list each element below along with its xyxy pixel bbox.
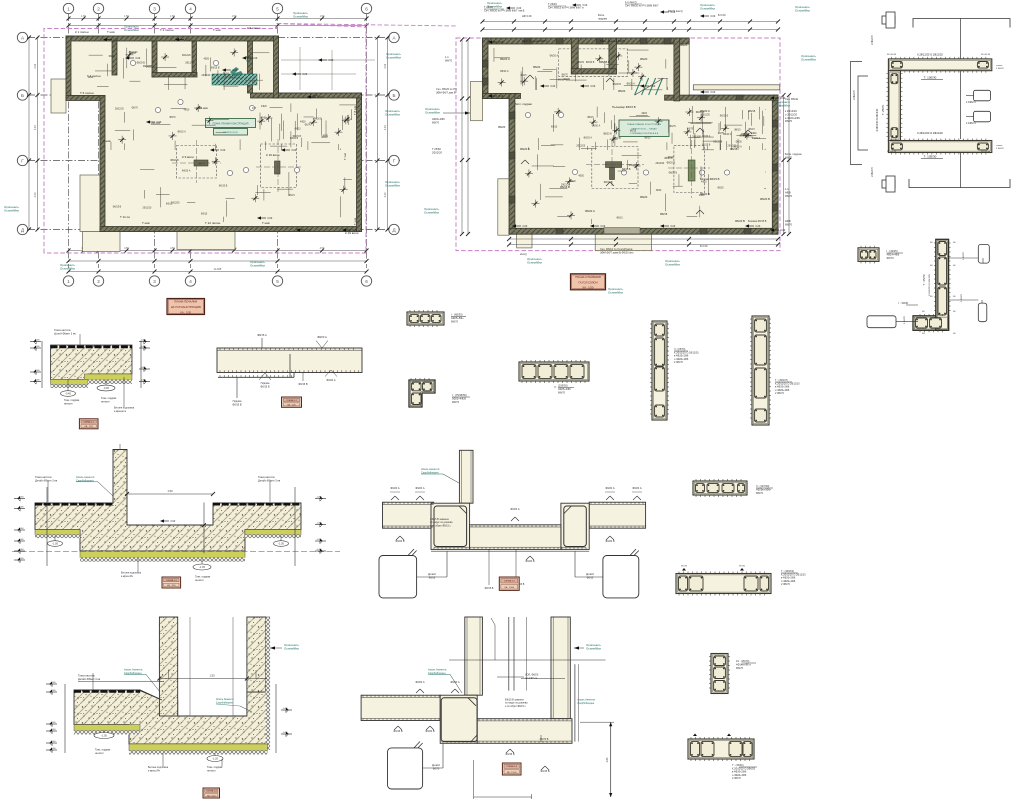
svg-text:Ф6/15: Ф6/15	[551, 126, 558, 129]
svg-text:-0.00: -0.00	[51, 690, 57, 692]
svg-text:4Ф20: 4Ф20	[190, 74, 196, 77]
svg-text:0.00: 0.00	[671, 11, 676, 14]
svg-text:Ботм. подрам Ф6/70: Ботм. подрам Ф6/70	[600, 39, 626, 43]
svg-text:Ф6/15 В: Ф6/15 В	[720, 114, 729, 117]
svg-text:Ф8/20 В: Ф8/20 В	[603, 132, 612, 135]
svg-text:Ф6/15: Ф6/15	[558, 79, 565, 82]
svg-text:-0.00: -0.00	[19, 506, 25, 508]
svg-text:1.50: 1.50	[124, 15, 129, 18]
svg-text:2Ф12/20: 2Ф12/20	[185, 61, 194, 64]
svg-text:ЗФМ Ф6/7 днва В Ф6/20 кнл: ЗФМ Ф6/7 днва В Ф6/20 кнл	[600, 250, 634, 254]
svg-text:Оснимбйки: Оснимбйки	[293, 14, 308, 18]
svg-text:Ф6/20 А: Ф6/20 А	[723, 133, 732, 136]
svg-text:3.20: 3.20	[34, 63, 37, 68]
svg-text:Ф6/20: Ф6/20	[498, 125, 506, 129]
svg-text:Т: 105/30: Т: 105/30	[924, 155, 937, 159]
svg-text:-0.00: -0.00	[19, 549, 25, 551]
svg-text:Сеч. Ф6/20 по РЧ: Сеч. Ф6/20 по РЧ	[436, 87, 457, 91]
svg-text:нн-вснт: нн-вснт	[195, 579, 205, 582]
svg-text:Т 8 зив: Т 8 зив	[353, 105, 357, 115]
svg-text:-0.00: -0.00	[51, 682, 57, 684]
svg-text:Ф6/20 А: Ф6/20 А	[585, 209, 595, 213]
svg-text:Ф6/70: Ф6/70	[564, 78, 571, 81]
svg-text:Ф6/15 В: Ф6/15 В	[485, 587, 494, 590]
svg-text:4Ф20+2Ф6: 4Ф20+2Ф6	[432, 117, 445, 121]
svg-text:2 4Ф6/70: 2 4Ф6/70	[966, 101, 976, 104]
svg-text:ГА ГОЛ СЛЛОН: ГА ГОЛ СЛЛОН	[578, 280, 597, 284]
svg-text:Скорблйперен: Скорблйперен	[577, 702, 594, 705]
svg-text:II :: II :	[554, 385, 557, 389]
svg-text:ОТКЛЕМЕН Р ВОЛЛИ А Б В: ОТКЛЕМЕН Р ВОЛЛИ А Б В	[630, 132, 659, 135]
svg-text:2 Ф6/70: 2 Ф6/70	[674, 361, 683, 364]
svg-text:Оснимбйки: Оснимбйки	[385, 183, 400, 187]
svg-text:-0.00: -0.00	[283, 708, 289, 710]
svg-text:ПЛАНА ПЛАНИН КОНСТРУКЦИЯ: ПЛАНА ПЛАНИН КОНСТРУКЦИЯ	[213, 123, 249, 126]
svg-text:Ф6/20: Ф6/20	[644, 137, 651, 140]
svg-text:Т нив: Т нив	[213, 28, 221, 32]
svg-text:4Ф20: 4Ф20	[656, 189, 662, 192]
svg-text:Апаль Анненти: Апаль Анненти	[124, 668, 143, 672]
svg-text:Ф6/15: Ф6/15	[520, 74, 527, 77]
svg-text:Ф6/70: Ф6/70	[785, 119, 793, 123]
svg-text:-0.00: -0.00	[35, 339, 41, 341]
svg-text:-1.05: -1.05	[52, 543, 58, 546]
svg-text:Ф6/20 А: Ф6/20 А	[415, 487, 424, 490]
svg-text:0.00: 0.00	[233, 69, 238, 72]
svg-text:-1.05: -1.05	[278, 543, 284, 546]
svg-text:Ф6/20: Ф6/20	[680, 43, 688, 47]
svg-text:СХЕМА 4-4: СХЕМА 4-4	[506, 765, 518, 768]
svg-text:-0.00: -0.00	[19, 528, 25, 530]
svg-text:2 Ф6/70: 2 Ф6/70	[732, 777, 741, 780]
svg-text:Ф6/15 В: Ф6/15 В	[622, 168, 631, 171]
svg-text:-0.00: -0.00	[317, 549, 323, 551]
svg-text:Оснимбйки: Оснимбйки	[608, 290, 623, 294]
svg-text:Оснимбйки: Оснимбйки	[250, 263, 265, 267]
svg-text:н по обрат Ф6/15 с: н по обрат Ф6/15 с	[505, 705, 526, 708]
svg-text:2 Ф6/70: 2 Ф6/70	[996, 147, 1005, 150]
svg-text:0.00: 0.00	[136, 57, 141, 60]
svg-text:Пълномер Ф6/15 В: Пълномер Ф6/15 В	[612, 105, 636, 109]
svg-text:Оснимбйки: Оснимбйки	[124, 28, 139, 32]
svg-text:1: 1	[67, 279, 70, 284]
svg-text:Т нив: Т нив	[353, 217, 357, 225]
svg-text:3.20: 3.20	[384, 125, 387, 130]
svg-text:Ф6/20: Ф6/20	[578, 61, 585, 64]
svg-text:Ф6/20 В: Ф6/20 В	[395, 540, 404, 543]
svg-text:2 4Ф6/70: 2 4Ф6/70	[966, 122, 976, 125]
svg-text:Ф6/70: Ф6/70	[687, 127, 694, 130]
svg-text:Ф6/15 В: Ф6/15 В	[232, 403, 241, 406]
svg-text:6: 6	[365, 279, 368, 284]
svg-text:К 16 вили: К 16 вили	[266, 153, 280, 157]
svg-text:-0.00: -0.00	[51, 748, 57, 750]
svg-text:Ф6/20 А: Ф6/20 А	[390, 487, 399, 490]
svg-text:подрам: подрам	[598, 17, 607, 20]
svg-text:Ф6/20 А: Ф6/20 А	[592, 124, 601, 127]
svg-text:НА ГОЛ КАНСТРУКЦИЯ: НА ГОЛ КАНСТРУКЦИЯ	[171, 305, 201, 309]
svg-text:I : (75/45/50): I : (75/45/50)	[452, 393, 467, 397]
svg-text:Т нив: Т нив	[262, 221, 270, 225]
svg-text:5: 5	[276, 6, 279, 11]
svg-text:Т 25/60: Т 25/60	[432, 147, 441, 151]
svg-text:2-Ф12/70: 2-Ф12/70	[853, 90, 856, 100]
svg-text:союзн.: союзн.	[996, 145, 1003, 147]
svg-text:0.00: 0.00	[253, 57, 258, 60]
svg-text:Оснимбйки: Оснимбйки	[801, 57, 816, 61]
svg-text:Ф6 Ф6 Ф6: Ф6 Ф6 Ф6	[887, 150, 897, 153]
svg-text:2Ф12/20: 2Ф12/20	[432, 150, 442, 154]
svg-text:0.00: 0.00	[591, 85, 596, 88]
svg-text:Оснимбйки: Оснимбйки	[424, 210, 439, 214]
svg-text:Б 0.00: Б 0.00	[700, 244, 708, 248]
svg-text:Ф8/20 В: Ф8/20 В	[586, 61, 595, 64]
svg-text:Т нив: Т нив	[107, 30, 115, 34]
svg-text:2 Ф6/70: 2 Ф6/70	[775, 392, 784, 395]
svg-text:I : (40/25): I : (40/25)	[887, 249, 898, 253]
svg-text:4.50: 4.50	[124, 247, 129, 250]
svg-text:ЗФМ Ф6/7 днв В: ЗФМ Ф6/7 днв В	[436, 90, 456, 94]
svg-text:6: 6	[365, 6, 368, 11]
svg-text:I : 30/30: I : 30/30	[898, 301, 908, 305]
svg-text:4Ф20: 4Ф20	[88, 76, 94, 79]
svg-text:Ф6/15 В: Ф6/15 В	[702, 144, 711, 147]
svg-text:Ф6/70: Ф6/70	[887, 256, 895, 260]
svg-text:4Ф20: 4Ф20	[578, 175, 584, 178]
svg-text:Оснимбйки: Оснимбйки	[284, 646, 299, 650]
svg-text:0.00: 0.00	[307, 229, 312, 232]
svg-text:Ф6/70: Ф6/70	[736, 666, 744, 670]
svg-text:Ф6/20: Ф6/20	[717, 186, 724, 189]
svg-text:Ф8/20 В: Ф8/20 В	[613, 83, 622, 86]
svg-text:Ф6/20 А: Ф6/20 А	[584, 137, 593, 140]
svg-text:СХЕМА 4-4: СХЕМА 4-4	[206, 790, 218, 793]
svg-text:Т: 100/30: Т: 100/30	[924, 76, 937, 80]
svg-text:0.00: 0.00	[499, 95, 504, 98]
svg-text:Боковка Ф6/15 В: Боковка Ф6/15 В	[748, 220, 767, 223]
svg-text:НФВ: НФВ	[785, 219, 791, 223]
svg-text:Оснимбйки: Оснимбйки	[425, 110, 440, 114]
svg-text:Ф6/20 А: Ф6/20 А	[550, 54, 559, 57]
svg-text:Ф6/15 В: Ф6/15 В	[393, 730, 402, 733]
svg-text:0.00: 0.00	[329, 59, 334, 62]
svg-text:Ф6/20: Ф6/20	[668, 156, 675, 159]
svg-text:СХЕМА 2-2: СХЕМА 2-2	[286, 399, 298, 402]
svg-text:Т: 25/70: Т: 25/70	[881, 104, 885, 115]
svg-text:3.20: 3.20	[34, 125, 37, 130]
svg-text:0.00: 0.00	[671, 225, 676, 228]
svg-text:Ф6/15: Ф6/15	[109, 55, 116, 58]
svg-text:1-1: 1-1	[785, 187, 789, 191]
svg-text:Б: Б	[21, 93, 24, 98]
svg-text:Ф6/70: Ф6/70	[433, 767, 440, 770]
svg-text:4.50: 4.50	[170, 247, 175, 250]
svg-text:1.50: 1.50	[167, 489, 173, 493]
svg-text:нн-вснт: нн-вснт	[101, 400, 111, 403]
svg-text:Ф6/20: Ф6/20	[569, 180, 576, 183]
svg-text:Ф6/20 А: Ф6/20 А	[500, 70, 509, 73]
svg-text:Ф6/15: Ф6/15	[616, 217, 623, 220]
svg-text:к-мрешетк: к-мрешетк	[114, 410, 127, 413]
svg-text:Ф6/20 А: Ф6/20 А	[752, 137, 761, 140]
svg-text:4Ф20: 4Ф20	[261, 105, 267, 108]
svg-text:Ф6/15: Ф6/15	[294, 127, 301, 130]
svg-text:нн-вснт: нн-вснт	[207, 769, 217, 772]
svg-text:2Ф12/20: 2Ф12/20	[701, 114, 710, 117]
svg-text:Ф6/20: Ф6/20	[321, 136, 328, 139]
svg-text:2Ф12/20: 2Ф12/20	[142, 207, 151, 210]
svg-text:-0.00: -0.00	[19, 558, 25, 560]
svg-text:Апаль Анненти: Апаль Анненти	[428, 668, 447, 672]
svg-text:в 4Ф20+2Ф6: в 4Ф20+2Ф6	[785, 116, 800, 120]
svg-text:3.20: 3.20	[384, 63, 387, 68]
svg-text:К1 : (25/70): К1 : (25/70)	[736, 659, 749, 663]
svg-text:Ф6/15 В: Ф6/15 В	[560, 185, 570, 189]
svg-text:2: 2	[97, 279, 100, 284]
svg-text:Ф6 Ф6: Ф6 Ф6	[739, 565, 746, 568]
svg-text:0.00: 0.00	[353, 229, 358, 232]
svg-text:Ф6/15: Ф6/15	[748, 128, 755, 131]
svg-text:0.00: 0.00	[517, 7, 522, 10]
svg-text:К.2Ф12/20 О.2Ф12/20: К.2Ф12/20 О.2Ф12/20	[928, 273, 931, 295]
svg-text:Ф6/70: Ф6/70	[305, 124, 312, 127]
svg-text:-1.35: -1.35	[199, 566, 205, 569]
svg-text:Оснимбйки: Оснимбйки	[700, 6, 715, 10]
svg-text:Скорблйперен: Скорблйперен	[216, 701, 233, 704]
svg-text:КА : 1/100: КА : 1/100	[504, 586, 514, 589]
svg-text:Ф6/15: Ф6/15	[630, 129, 637, 132]
svg-text:нн-вснт: нн-вснт	[95, 752, 105, 755]
svg-text:-0.00: -0.00	[51, 729, 57, 731]
svg-text:Ф6/20: Ф6/20	[736, 140, 743, 143]
svg-text:Ф6/70: Ф6/70	[558, 390, 566, 394]
svg-text:4: 4	[189, 279, 192, 284]
svg-text:2Ф12/20: 2Ф12/20	[741, 133, 750, 136]
svg-text:Ф6/70: Ф6/70	[785, 155, 793, 159]
svg-text:Ф6/15: Ф6/15	[288, 194, 295, 197]
svg-text:Ф6/70: Ф6/70	[756, 491, 764, 495]
svg-text:I : (N5/30): I : (N5/30)	[451, 313, 463, 317]
svg-text:НФВ: НФВ	[785, 190, 791, 194]
svg-text:1.50: 1.50	[320, 15, 325, 18]
svg-text:4Ф20: 4Ф20	[641, 112, 647, 115]
svg-text:2Ф12/20: 2Ф12/20	[713, 140, 722, 143]
svg-text:Ф6/15: Ф6/15	[223, 72, 230, 75]
svg-text:Ф6 Ф6 Ф6: Ф6 Ф6 Ф6	[981, 53, 991, 56]
svg-text:КА : 1/50: КА : 1/50	[180, 310, 191, 314]
svg-text:2Ф12/20: 2Ф12/20	[202, 74, 211, 77]
svg-text:Ф6/20 В: Ф6/20 В	[425, 730, 434, 733]
svg-text:К 7: К 7	[252, 106, 257, 110]
svg-text:Оснимбйки: Оснимбйки	[386, 55, 401, 59]
svg-text:Ф6/15: Ф6/15	[748, 109, 756, 113]
svg-text:Ф6/20 А: Ф6/20 А	[500, 57, 510, 61]
svg-text:Т пил: Т пил	[343, 152, 347, 160]
svg-text:1.50: 1.50	[81, 15, 86, 18]
svg-text:Ф6/70: Ф6/70	[718, 132, 725, 135]
svg-text:к-мреш.Ре: к-мреш.Ре	[121, 575, 134, 578]
svg-text:1 Ф6/70: 1 Ф6/70	[903, 315, 906, 324]
svg-text:0.00: 0.00	[221, 149, 226, 152]
svg-text:Ф6/20 А: Ф6/20 А	[626, 83, 635, 86]
svg-text:Детайл Ф6мнт 3 нв: Детайл Ф6мнт 3 нв	[78, 678, 101, 681]
svg-text:К.2Ф12/20 О.2Ф12/20: К.2Ф12/20 О.2Ф12/20	[917, 131, 943, 135]
svg-text:Ф6/20 А: Ф6/20 А	[510, 508, 519, 511]
svg-text:к 2Ф12/20: к 2Ф12/20	[785, 109, 797, 113]
svg-text:Ботм.: Ботм.	[598, 13, 605, 17]
svg-text:Ф6/15: Ф6/15	[587, 576, 594, 579]
svg-text:Ф6/70: Ф6/70	[132, 107, 139, 110]
svg-text:0.00: 0.00	[523, 225, 528, 228]
svg-text:Ботл. подрам Ф6/70: Ботл. подрам Ф6/70	[522, 39, 547, 43]
svg-text:К.2Ф12/20 О.2Ф12/20: К.2Ф12/20 О.2Ф12/20	[917, 53, 943, 57]
svg-text:Ф6/20 В: Ф6/20 В	[605, 540, 614, 543]
svg-text:Б 0.00: Б 0.00	[718, 13, 726, 17]
svg-text:Ф6/70: Ф6/70	[169, 116, 176, 119]
svg-text:3: 3	[153, 6, 156, 11]
svg-text:Ф8/20 В: Ф8/20 В	[170, 159, 179, 162]
svg-text:-0.00: -0.00	[141, 367, 147, 369]
svg-text:4Ф20: 4Ф20	[300, 121, 306, 124]
svg-text:-0.00: -0.00	[141, 346, 147, 348]
svg-text:0.00: 0.00	[551, 85, 556, 88]
svg-text:0.00: 0.00	[171, 520, 176, 523]
svg-text:1 Ф6/70: 1 Ф6/70	[960, 293, 963, 302]
svg-text:Б: Б	[392, 93, 395, 98]
svg-text:Ф6/70: Ф6/70	[785, 222, 793, 226]
svg-text:Ф8/20 В: Ф8/20 В	[669, 171, 678, 174]
svg-text:2ног(): 2ног()	[520, 252, 527, 256]
svg-text:Ф6/20 А: Ф6/20 А	[702, 135, 711, 138]
svg-text:Ф8/20 В: Ф8/20 В	[136, 62, 145, 65]
svg-text:Ф6/20 А: Ф6/20 А	[415, 681, 424, 684]
svg-text:н по обрат Ф6/15 с: н по обрат Ф6/15 с	[430, 524, 451, 527]
svg-text:Ф6/15: Ф6/15	[201, 213, 208, 216]
svg-text:-0.00: -0.00	[141, 379, 147, 381]
svg-text:-0.00: -0.00	[317, 539, 323, 541]
svg-text:КА : 1/20: КА : 1/20	[85, 425, 94, 428]
svg-text:Ф6/20: Ф6/20	[245, 56, 252, 59]
svg-text:Ф8/20 В: Ф8/20 В	[667, 161, 676, 164]
svg-text:2Ф12/20: 2Ф12/20	[576, 144, 585, 147]
svg-text:1 Ф6/70: 1 Ф6/70	[962, 251, 965, 260]
svg-text:1.50: 1.50	[232, 15, 237, 18]
svg-text:1: 1	[67, 6, 70, 11]
svg-text:Ф6/15 В: Ф6/15 В	[505, 753, 514, 756]
svg-text:2-Ф12/70: 2-Ф12/70	[871, 167, 874, 177]
svg-text:по 2 Ф7 по: по 2 Ф7 по	[525, 677, 538, 680]
svg-text:14.845: 14.845	[214, 268, 222, 271]
svg-text:Оснимбйки: Оснимбйки	[795, 8, 810, 12]
svg-text:4Ф20: 4Ф20	[203, 58, 209, 61]
svg-text:Ф6 Ф6 Ф6: Ф6 Ф6 Ф6	[981, 150, 991, 153]
svg-text:详онтй Ф6мнт 3 нв: 详онтй Ф6мнт 3 нв	[54, 331, 76, 335]
svg-text:0.00: 0.00	[499, 41, 504, 44]
svg-text:Ф6/20: Ф6/20	[618, 89, 626, 93]
svg-text:Т нив: Т нив	[142, 221, 150, 225]
svg-text:Ф6/20 А: Ф6/20 А	[520, 147, 530, 151]
svg-text:3.20: 3.20	[384, 192, 387, 197]
svg-text:2Ф12/20: 2Ф12/20	[129, 51, 138, 54]
svg-text:0.00: 0.00	[756, 225, 761, 228]
svg-text:0.00: 0.00	[268, 217, 273, 220]
svg-text:4: 4	[189, 6, 192, 11]
svg-text:5: 5	[276, 279, 279, 284]
svg-text:Оснимбйки: Оснимбйки	[775, 103, 790, 107]
svg-text:Ф8/20 А: Ф8/20 А	[317, 335, 327, 339]
svg-text:Ботм. подрам: Ботм. подрам	[785, 152, 802, 156]
svg-text:1.50: 1.50	[170, 15, 175, 18]
svg-text:Ф8/20 В: Ф8/20 В	[225, 75, 234, 78]
svg-text:Т 11 пи: Т 11 пи	[120, 215, 130, 219]
svg-text:Оснимбйки: Оснимбйки	[487, 4, 502, 8]
svg-text:Ф6/70: Ф6/70	[562, 74, 569, 77]
svg-text:ПЛАНА ПЕЧАЛНИ: ПЛАНА ПЕЧАЛНИ	[174, 300, 197, 304]
svg-text:СХЕМА 3-3: СХЕМА 3-3	[504, 580, 516, 583]
svg-text:2-Ф12/70: 2-Ф12/70	[871, 35, 874, 45]
svg-text:1.50: 1.50	[209, 674, 215, 678]
svg-text:СХЕМА 1-1: СХЕМА 1-1	[83, 421, 95, 424]
svg-text:К 9 вили: К 9 вили	[182, 155, 194, 159]
svg-text:3.20: 3.20	[34, 192, 37, 197]
svg-text:ПАКЕТЕ 50 65: ПАКЕТЕ 50 65	[223, 131, 238, 134]
svg-text:1-1: 1-1	[445, 55, 449, 59]
svg-text:Ф6/70: Ф6/70	[199, 163, 206, 166]
svg-text:К.2Ф12/20 О.2Ф12/20: К.2Ф12/20 О.2Ф12/20	[876, 108, 879, 131]
svg-text:Ф6/70: Ф6/70	[451, 319, 459, 323]
svg-text:-0.00: -0.00	[35, 379, 41, 381]
svg-text:Ф6 Ф6: Ф6 Ф6	[681, 565, 688, 568]
svg-text:Т 6 пилон: Т 6 пилон	[80, 91, 94, 95]
svg-text:0.00: 0.00	[781, 229, 786, 232]
svg-text:-0.00: -0.00	[19, 539, 25, 541]
svg-text:Ф8/20 В: Ф8/20 В	[313, 117, 322, 120]
svg-text:Ф6/15 В: Ф6/15 В	[219, 184, 228, 187]
svg-text:-0.00: -0.00	[35, 370, 41, 372]
svg-text:Ф6/15 В: Ф6/15 В	[260, 385, 269, 388]
svg-text:-1.05: -1.05	[101, 735, 107, 738]
svg-text:Ф6/70: Ф6/70	[670, 125, 677, 128]
svg-text:3: 3	[153, 279, 156, 284]
svg-text:2Ф12/20: 2Ф12/20	[692, 135, 701, 138]
svg-text:К 5 пилон: К 5 пилон	[247, 26, 261, 30]
svg-text:2Ф12/20: 2Ф12/20	[115, 107, 124, 110]
svg-text:2 Ф6/70: 2 Ф6/70	[781, 583, 790, 586]
svg-text:-0.00: -0.00	[283, 732, 289, 734]
svg-text:Ф6/15 В: Ф6/15 В	[600, 60, 610, 64]
svg-text:2 Ф6/70: 2 Ф6/70	[996, 67, 1005, 70]
svg-text:Ф6/20 В: Ф6/20 В	[525, 560, 534, 563]
svg-text:0.00: 0.00	[303, 73, 308, 76]
svg-text:Ф6/20 В: Ф6/20 В	[735, 219, 745, 223]
svg-text:0.00: 0.00	[711, 15, 716, 18]
svg-text:Ф6/20 А: Ф6/20 А	[605, 487, 614, 490]
svg-text:II : (107/30): II : (107/30)	[756, 484, 769, 488]
svg-text:4.50: 4.50	[320, 247, 325, 250]
svg-text:-0.00: -0.00	[35, 346, 41, 348]
svg-text:-0.00: -0.00	[51, 722, 57, 724]
svg-text:КА : 1/20: КА : 1/20	[207, 794, 216, 797]
svg-text:КА : 1/20: КА : 1/20	[287, 404, 296, 407]
svg-text:Ф6/15: Ф6/15	[730, 147, 738, 151]
svg-text:КА : 1/100: КА : 1/100	[507, 771, 517, 774]
svg-text:Ф6/15 В: Ф6/15 В	[211, 67, 220, 70]
svg-text:Оснимбйки: Оснимбйки	[385, 112, 400, 116]
svg-text:Ф6/20: Ф6/20	[260, 117, 267, 120]
svg-text:-0.05: -0.05	[103, 387, 109, 390]
svg-text:Ф6/70: Ф6/70	[445, 58, 453, 62]
svg-text:-0.00: -0.00	[141, 339, 147, 341]
